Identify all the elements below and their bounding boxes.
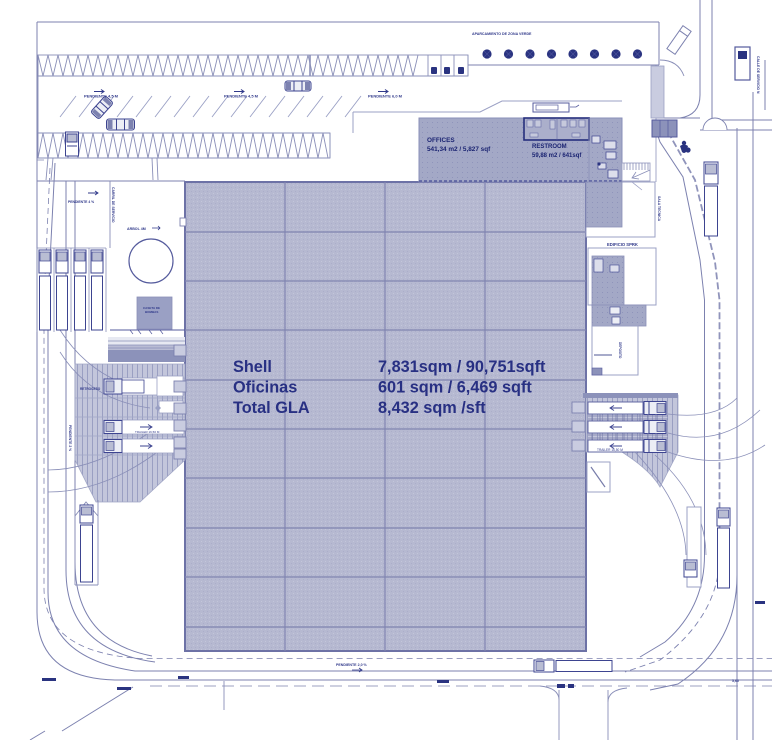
svg-text:PENDIENTE 4 %: PENDIENTE 4 % bbox=[68, 200, 94, 204]
svg-text:SALA TECNICA: SALA TECNICA bbox=[657, 196, 661, 222]
svg-text:541,34 m2 / 5,827 sqf: 541,34 m2 / 5,827 sqf bbox=[427, 146, 491, 153]
svg-text:Shell: Shell bbox=[233, 358, 272, 376]
svg-text:601 sqm / 6,469 sqft: 601 sqm / 6,469 sqft bbox=[378, 379, 532, 397]
svg-text:Total GLA: Total GLA bbox=[233, 399, 310, 417]
svg-text:APARCAMIENTO DE ZONA VERDE: APARCAMIENTO DE ZONA VERDE bbox=[472, 32, 532, 36]
svg-text:PENDIENTE 4,5 M: PENDIENTE 4,5 M bbox=[224, 94, 259, 99]
svg-text:CALLE DE SERVICIO N: CALLE DE SERVICIO N bbox=[756, 56, 760, 94]
svg-text:5,60: 5,60 bbox=[732, 679, 739, 683]
svg-text:PENDIENTE 2,0 %: PENDIENTE 2,0 % bbox=[336, 663, 368, 667]
svg-text:OFFICES: OFFICES bbox=[427, 137, 455, 144]
svg-text:ARBOL 4M: ARBOL 4M bbox=[127, 227, 146, 231]
svg-text:Oficinas: Oficinas bbox=[233, 379, 297, 397]
svg-text:PENDIENTE 4,5 M: PENDIENTE 4,5 M bbox=[84, 94, 119, 99]
svg-text:CARRIL DE SERVICIO: CARRIL DE SERVICIO bbox=[111, 187, 115, 223]
svg-text:PENDIENTE 2 %: PENDIENTE 2 % bbox=[68, 425, 72, 451]
svg-text:PENDIENTE 6,0 M: PENDIENTE 6,0 M bbox=[368, 94, 403, 99]
svg-text:RESTROOM: RESTROOM bbox=[532, 144, 567, 150]
svg-text:EDIFICIO SPRK: EDIFICIO SPRK bbox=[607, 242, 638, 247]
svg-text:RETROCESO: RETROCESO bbox=[80, 387, 101, 391]
svg-text:BOMBAS: BOMBAS bbox=[145, 310, 158, 314]
svg-text:TRAILER 16,50 M: TRAILER 16,50 M bbox=[135, 430, 160, 434]
svg-text:DEPOSITO: DEPOSITO bbox=[618, 342, 622, 359]
svg-text:7,831sqm / 90,751sqft: 7,831sqm / 90,751sqft bbox=[378, 358, 546, 376]
svg-text:TRAILER 16,50 M: TRAILER 16,50 M bbox=[597, 448, 623, 452]
svg-text:8,432 sqm /sft: 8,432 sqm /sft bbox=[378, 399, 486, 417]
svg-text:59,88 m2 / 641sqf: 59,88 m2 / 641sqf bbox=[532, 153, 582, 159]
